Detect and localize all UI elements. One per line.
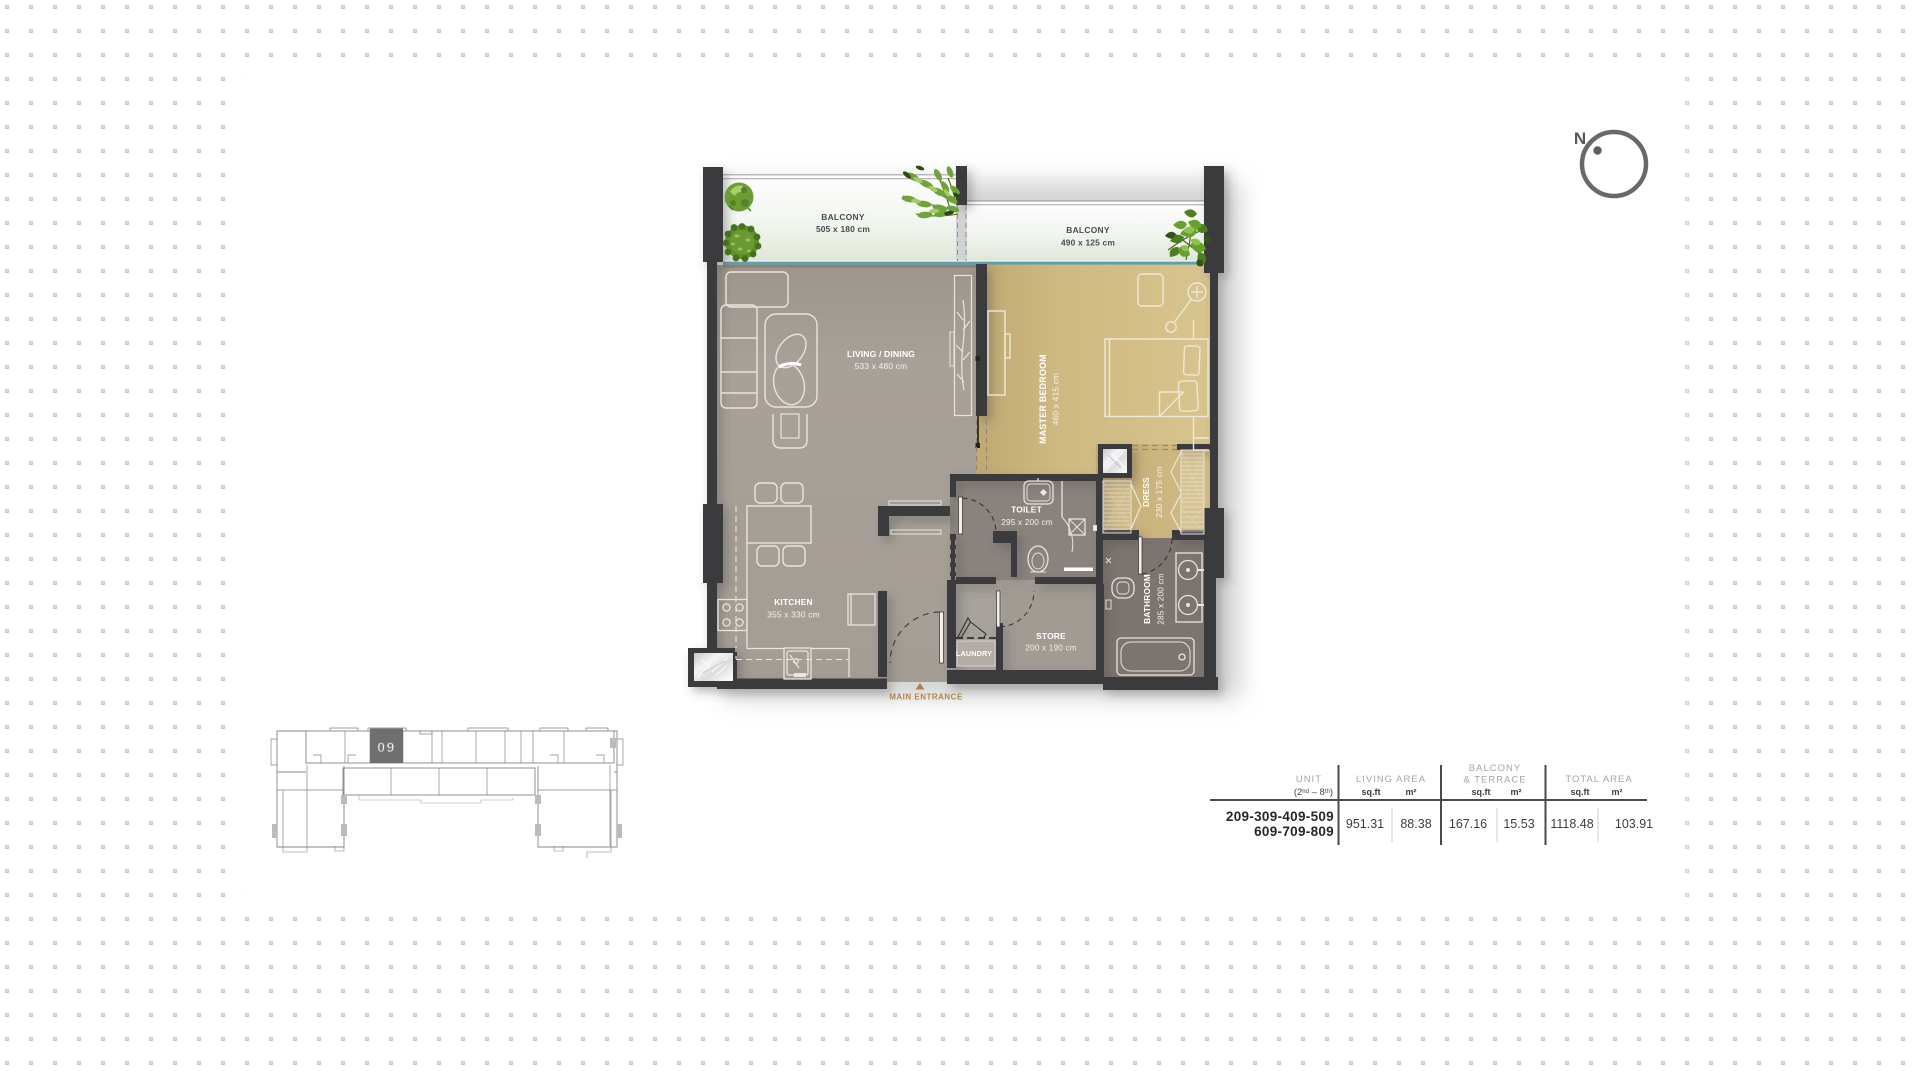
- svg-text:BALCONY: BALCONY: [821, 212, 865, 222]
- svg-text:DRESS: DRESS: [1141, 477, 1151, 507]
- svg-text:355 x 330 cm: 355 x 330 cm: [767, 610, 820, 620]
- svg-text:& TERRACE: & TERRACE: [1463, 775, 1526, 786]
- svg-text:LIVING / DINING: LIVING / DINING: [847, 349, 915, 359]
- svg-text:TOTAL AREA: TOTAL AREA: [1565, 774, 1632, 785]
- svg-text:m²: m²: [1406, 787, 1417, 797]
- svg-text:MASTER BEDROOM: MASTER BEDROOM: [1038, 354, 1048, 444]
- svg-text:UNIT: UNIT: [1296, 774, 1322, 785]
- svg-text:230 x 175 cm: 230 x 175 cm: [1155, 466, 1164, 518]
- svg-text:TOILET: TOILET: [1011, 505, 1043, 515]
- svg-text:490 x 125 cm: 490 x 125 cm: [1061, 238, 1115, 248]
- svg-text:m²: m²: [1511, 787, 1522, 797]
- svg-text:MAIN ENTRANCE: MAIN ENTRANCE: [889, 693, 963, 702]
- svg-text:09: 09: [377, 739, 396, 755]
- svg-text:BATHROOM: BATHROOM: [1142, 574, 1152, 624]
- svg-text:BALCONY: BALCONY: [1469, 763, 1521, 774]
- svg-text:1118.48: 1118.48: [1550, 817, 1593, 831]
- svg-text:m²: m²: [1612, 787, 1623, 797]
- svg-text:KITCHEN: KITCHEN: [774, 597, 813, 607]
- svg-text:167.16: 167.16: [1449, 817, 1487, 831]
- svg-text:200 x 190 cm: 200 x 190 cm: [1025, 644, 1077, 653]
- svg-text:N: N: [1574, 129, 1586, 148]
- svg-text:88.38: 88.38: [1400, 817, 1431, 831]
- svg-text:15.53: 15.53: [1503, 817, 1534, 831]
- svg-text:285 x 200 cm: 285 x 200 cm: [1157, 573, 1166, 625]
- svg-text:LIVING AREA: LIVING AREA: [1356, 774, 1426, 785]
- svg-text:103.91: 103.91: [1615, 817, 1653, 831]
- svg-text:sq.ft: sq.ft: [1472, 787, 1491, 797]
- svg-text:533 x 480 cm: 533 x 480 cm: [855, 361, 908, 371]
- svg-text:951.31: 951.31: [1346, 817, 1384, 831]
- svg-text:STORE: STORE: [1036, 631, 1066, 641]
- svg-text:460 x 415 cm: 460 x 415 cm: [1051, 373, 1061, 426]
- svg-text:609-709-809: 609-709-809: [1254, 824, 1334, 839]
- svg-text:LAUNDRY: LAUNDRY: [956, 649, 992, 658]
- svg-text:sq.ft: sq.ft: [1362, 787, 1381, 797]
- svg-text:sq.ft: sq.ft: [1571, 787, 1590, 797]
- svg-text:BALCONY: BALCONY: [1066, 225, 1110, 235]
- svg-text:209-309-409-509: 209-309-409-509: [1226, 809, 1334, 824]
- svg-text:505 x 180 cm: 505 x 180 cm: [816, 224, 870, 234]
- svg-text:295 x 200 cm: 295 x 200 cm: [1001, 518, 1053, 527]
